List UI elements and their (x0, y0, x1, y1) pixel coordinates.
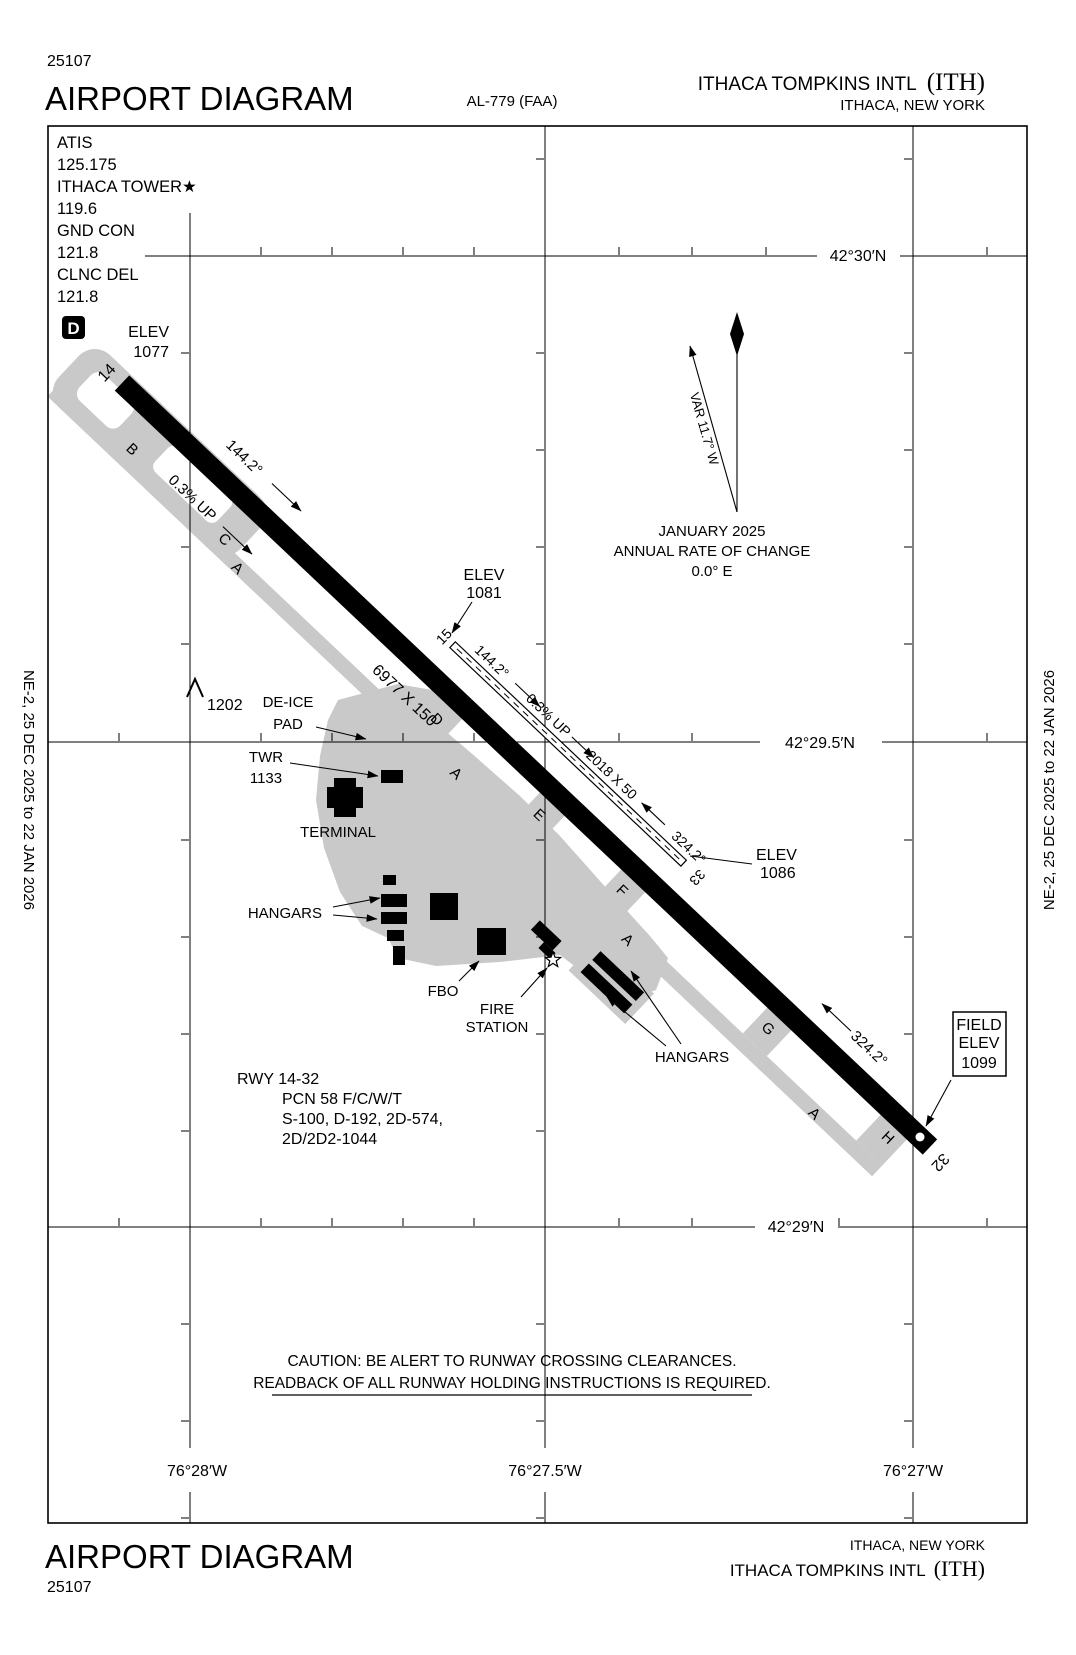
airport-diagram-canvas: 25107 AIRPORT DIAGRAM AL-779 (FAA) ITHAC… (0, 0, 1076, 1650)
airport-code-bottom-text: (ITH) (934, 1556, 985, 1581)
field-elev-arrow (926, 1080, 951, 1126)
city-state-bottom: ITHACA, NEW YORK (850, 1537, 986, 1553)
tower-building (381, 770, 403, 783)
runway-end-33-label: 33 (686, 866, 708, 888)
runway-end-15-label: 15 (433, 625, 455, 647)
runway-data-block: RWY 14-32 PCN 58 F/C/W/T S-100, D-192, 2… (237, 1071, 443, 1148)
airport-name-top: ITHACA TOMPKINS INTL(ITH) (698, 69, 985, 96)
tower-freq: 119.6 (57, 200, 97, 218)
fire-station-arrow (521, 968, 547, 997)
hangar-w-5 (393, 946, 405, 965)
terminal-label: TERMINAL (300, 824, 376, 841)
lat-label-4230: 42°30′N (830, 248, 887, 265)
airport-name-bottom: ITHACA TOMPKINS INTL(ITH) (730, 1556, 985, 1581)
fire-station-label-2: STATION (466, 1019, 529, 1036)
taxiway-a (47, 386, 882, 1177)
variation-change-1: ANNUAL RATE OF CHANGE (614, 543, 811, 560)
rwy-data-2: PCN 58 F/C/W/T (282, 1091, 402, 1108)
taxiway-rotated-group (3, 340, 922, 1219)
true-north-arrowhead (730, 312, 744, 356)
side-banner-left: NE-2, 25 DEC 2025 to 22 JAN 2026 (20, 670, 37, 910)
field-elev-box: FIELD ELEV 1099 (926, 1012, 1006, 1126)
rwy14-heading-arrow (272, 484, 301, 511)
runway-14-32 (115, 375, 937, 1154)
lat-label-42295: 42°29.5′N (785, 735, 855, 752)
city-state-top: ITHACA, NEW YORK (840, 97, 985, 114)
footer-title: AIRPORT DIAGRAM (45, 1538, 354, 1575)
rwy15-heading-label: 144.2° (472, 642, 513, 682)
field-elev-point (916, 1133, 925, 1142)
runway-end-32-label: 32 (928, 1150, 953, 1175)
caution-line-1: CAUTION: BE ALERT TO RUNWAY CROSSING CLE… (287, 1353, 736, 1370)
clearance-label: CLNC DEL (57, 266, 139, 284)
large-hangar-building (430, 893, 458, 920)
fbo-label: FBO (428, 983, 459, 1000)
deice-label-2: PAD (273, 716, 303, 733)
ground-freq: 121.8 (57, 244, 98, 262)
terminal-building-b (327, 787, 363, 808)
rwy-data-3: S-100, D-192, 2D-574, (282, 1111, 443, 1128)
elev15-value: 1081 (466, 585, 502, 602)
variation-group: VAR 11.7° W JANUARY 2025 ANNUAL RATE OF … (614, 312, 811, 580)
variation-label: VAR 11.7° W (687, 391, 722, 468)
chart-id-top: 25107 (47, 53, 92, 70)
field-elev-line1: FIELD (956, 1017, 1001, 1034)
atis-label: ATIS (57, 134, 92, 152)
clearance-freq: 121.8 (57, 288, 98, 306)
elev15-arrow (452, 602, 472, 633)
hangar-w-2 (381, 894, 407, 907)
fire-station-label-1: FIRE (480, 1001, 514, 1018)
obstruction-icon (187, 679, 203, 697)
airport-name-text: ITHACA TOMPKINS INTL (698, 74, 917, 95)
caution-block: CAUTION: BE ALERT TO RUNWAY CROSSING CLE… (253, 1353, 771, 1395)
hangar-w-3 (381, 912, 407, 924)
lon-label-7628: 76°28′W (167, 1463, 228, 1480)
airport-name-bottom-text: ITHACA TOMPKINS INTL (730, 1561, 926, 1580)
field-elev-value: 1099 (961, 1055, 997, 1072)
rwy-data-4: 2D/2D2-1044 (282, 1131, 377, 1148)
elev14-label: ELEV (128, 324, 169, 341)
field-elev-line2: ELEV (959, 1035, 1000, 1052)
atis-freq: 125.175 (57, 156, 117, 174)
twr-label: TWR (249, 749, 283, 766)
rwy33-heading-label: 324.2° (669, 828, 710, 868)
side-banner-right: NE-2, 25 DEC 2025 to 22 JAN 2026 (1041, 670, 1058, 910)
tower-label: ITHACA TOWER★ (57, 178, 197, 196)
variation-change-2: 0.0° E (691, 563, 732, 580)
comm-block: ATIS 125.175 ITHACA TOWER★ 119.6 GND CON… (57, 134, 197, 306)
fbo-building (477, 928, 506, 955)
obstruction-elev: 1202 (207, 697, 243, 714)
hangars-west-label: HANGARS (248, 905, 322, 922)
page-title: AIRPORT DIAGRAM (45, 80, 354, 117)
d-symbol: D (67, 319, 79, 338)
chart-id-bottom: 25107 (47, 1579, 92, 1596)
ground-label: GND CON (57, 222, 135, 240)
twr-elev: 1133 (250, 770, 282, 787)
elev15-label: ELEV (464, 567, 505, 584)
elev33-label: ELEV (756, 847, 797, 864)
airport-diagram-page: 25107 AIRPORT DIAGRAM AL-779 (FAA) ITHAC… (0, 0, 1076, 1650)
procedure-id: AL-779 (FAA) (467, 93, 558, 110)
rwy32-heading-arrow (822, 1004, 851, 1031)
lon-label-76275: 76°27.5′W (508, 1463, 582, 1480)
lat-label-4229: 42°29′N (768, 1219, 825, 1236)
elev33-value: 1086 (760, 865, 796, 882)
hangar-w-4 (387, 930, 404, 941)
deice-label-1: DE-ICE (263, 694, 314, 711)
variation-date: JANUARY 2025 (658, 523, 765, 540)
hangars-se-label: HANGARS (655, 1049, 729, 1066)
airport-code-text: (ITH) (927, 69, 985, 96)
hangar-w-1 (383, 875, 396, 885)
caution-line-2: READBACK OF ALL RUNWAY HOLDING INSTRUCTI… (253, 1375, 771, 1392)
elev14-value: 1077 (133, 344, 169, 361)
taxiway-apron-layer (3, 340, 922, 1219)
rwy-data-1: RWY 14-32 (237, 1071, 319, 1088)
lon-label-7627: 76°27′W (883, 1463, 944, 1480)
